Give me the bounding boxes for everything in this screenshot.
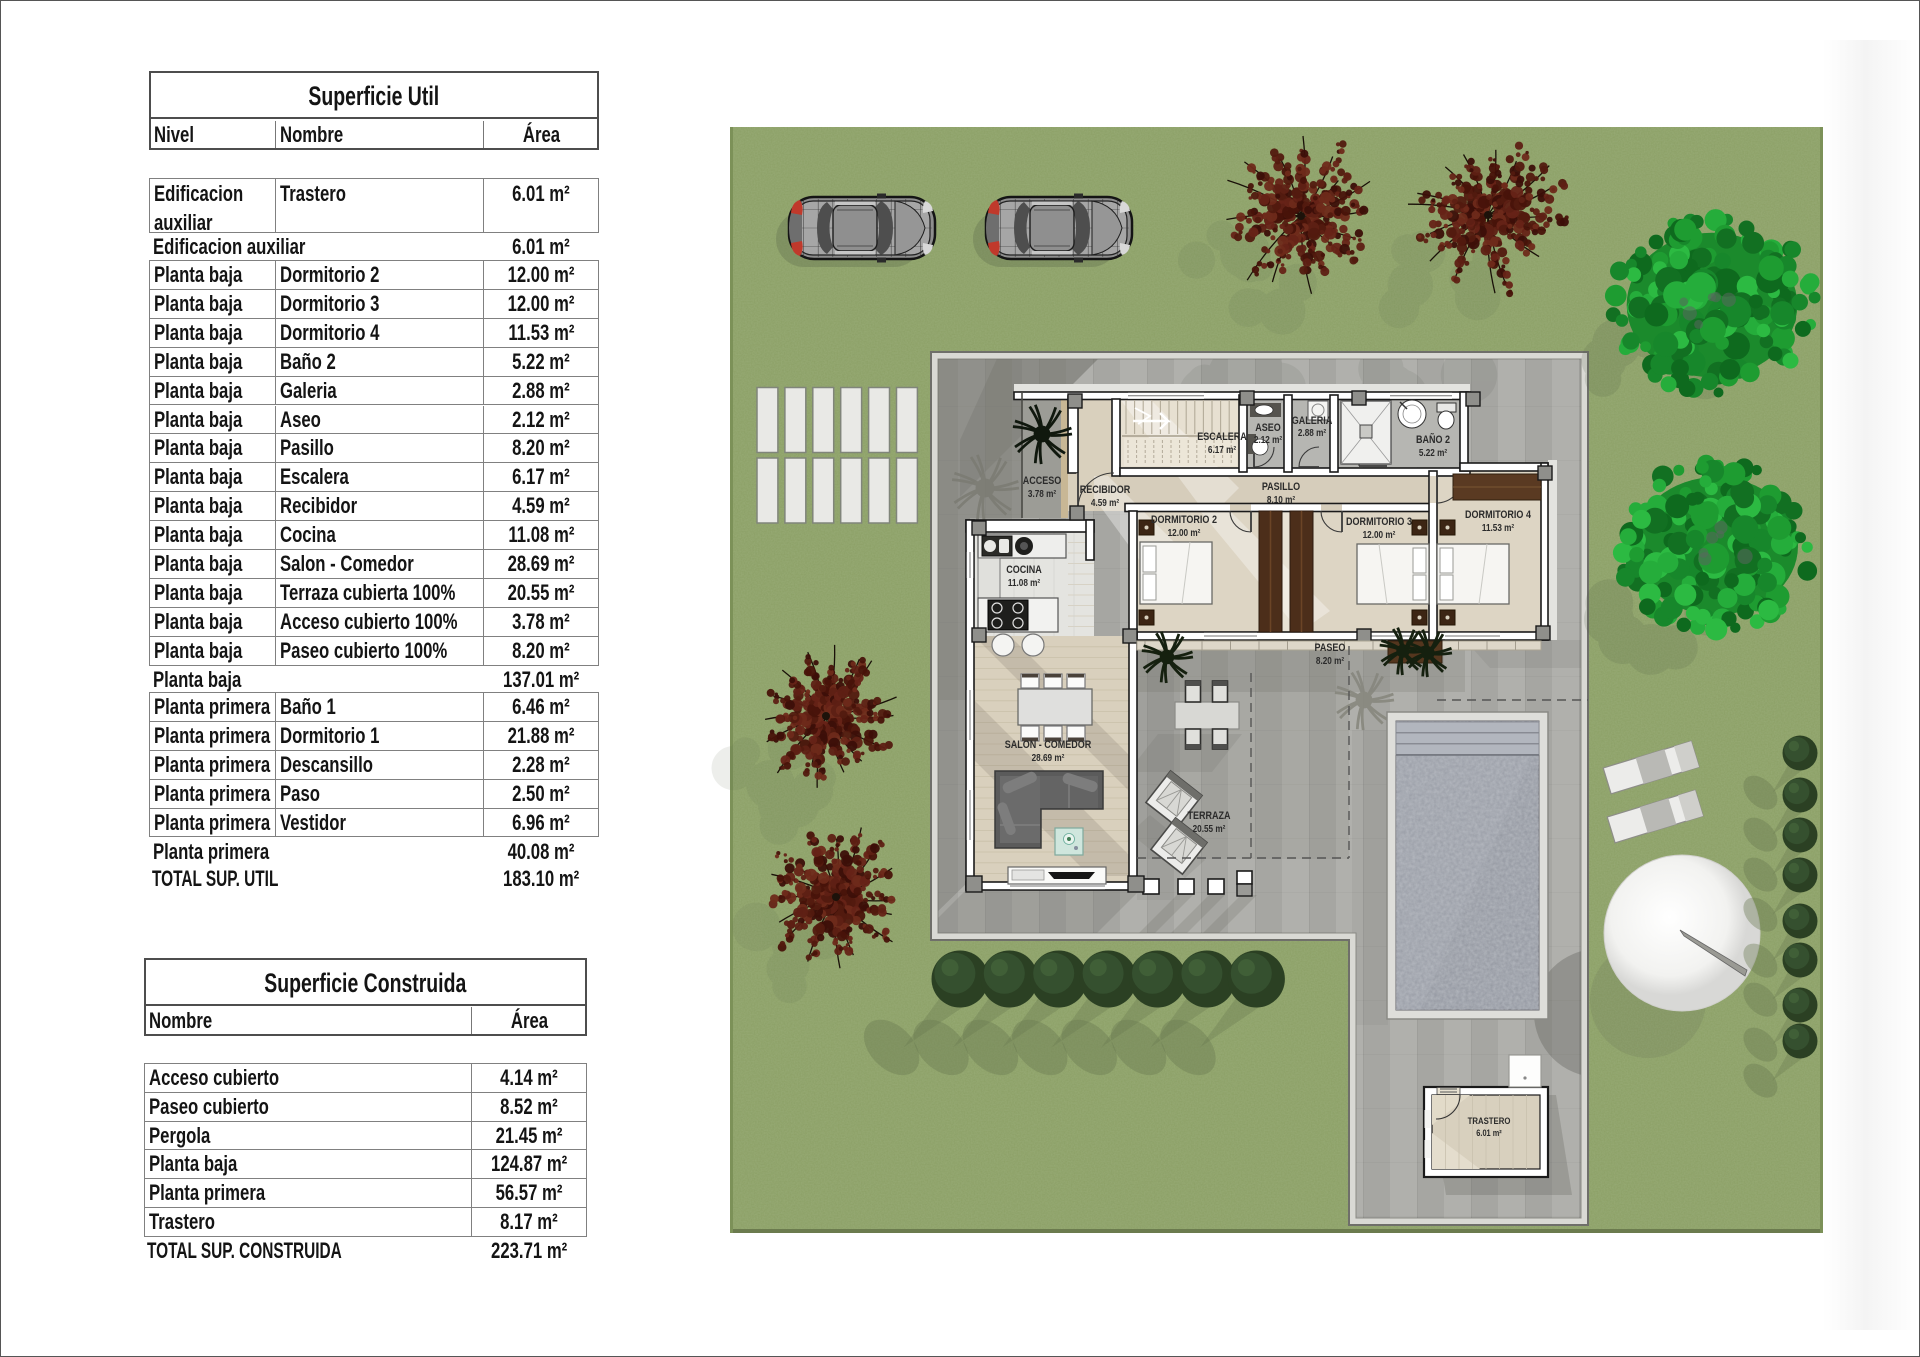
svg-text:12.00 m²: 12.00 m²	[1363, 529, 1396, 540]
svg-text:6.17 m²: 6.17 m²	[1208, 444, 1236, 455]
svg-text:BAÑO 2: BAÑO 2	[1416, 432, 1450, 446]
svg-text:ACCESO: ACCESO	[1023, 475, 1062, 487]
svg-text:12.00 m²: 12.00 m²	[1168, 527, 1201, 538]
svg-text:5.22 m²: 5.22 m²	[1419, 447, 1447, 458]
svg-text:DORMITORIO 2: DORMITORIO 2	[1151, 514, 1217, 526]
svg-text:DORMITORIO 4: DORMITORIO 4	[1465, 509, 1531, 521]
svg-text:11.08 m²: 11.08 m²	[1008, 577, 1040, 588]
svg-text:ASEO: ASEO	[1255, 422, 1281, 434]
svg-text:SALON - COMEDOR: SALON - COMEDOR	[1005, 739, 1092, 751]
svg-text:6.01 m²: 6.01 m²	[1476, 1128, 1502, 1138]
svg-text:28.69 m²: 28.69 m²	[1032, 752, 1065, 763]
svg-text:8.20 m²: 8.20 m²	[1316, 655, 1344, 666]
svg-text:RECIBIDOR: RECIBIDOR	[1080, 484, 1131, 496]
svg-text:ESCALERA: ESCALERA	[1197, 431, 1247, 443]
svg-text:PASILLO: PASILLO	[1262, 481, 1301, 493]
svg-text:8.10 m²: 8.10 m²	[1267, 494, 1295, 505]
svg-text:3.78 m²: 3.78 m²	[1028, 488, 1056, 499]
svg-text:11.53 m²: 11.53 m²	[1482, 522, 1514, 533]
svg-text:COCINA: COCINA	[1006, 564, 1042, 576]
svg-text:GALERIA: GALERIA	[1292, 415, 1333, 427]
svg-text:TERRAZA: TERRAZA	[1187, 810, 1230, 822]
svg-text:TRASTERO: TRASTERO	[1468, 1115, 1511, 1126]
svg-text:4.59 m²: 4.59 m²	[1091, 497, 1119, 508]
svg-text:DORMITORIO 3: DORMITORIO 3	[1346, 516, 1412, 528]
svg-text:PASEO: PASEO	[1315, 642, 1346, 654]
svg-text:2.12 m²: 2.12 m²	[1254, 434, 1282, 445]
svg-text:2.88 m²: 2.88 m²	[1298, 427, 1326, 438]
svg-text:20.55 m²: 20.55 m²	[1193, 823, 1226, 834]
